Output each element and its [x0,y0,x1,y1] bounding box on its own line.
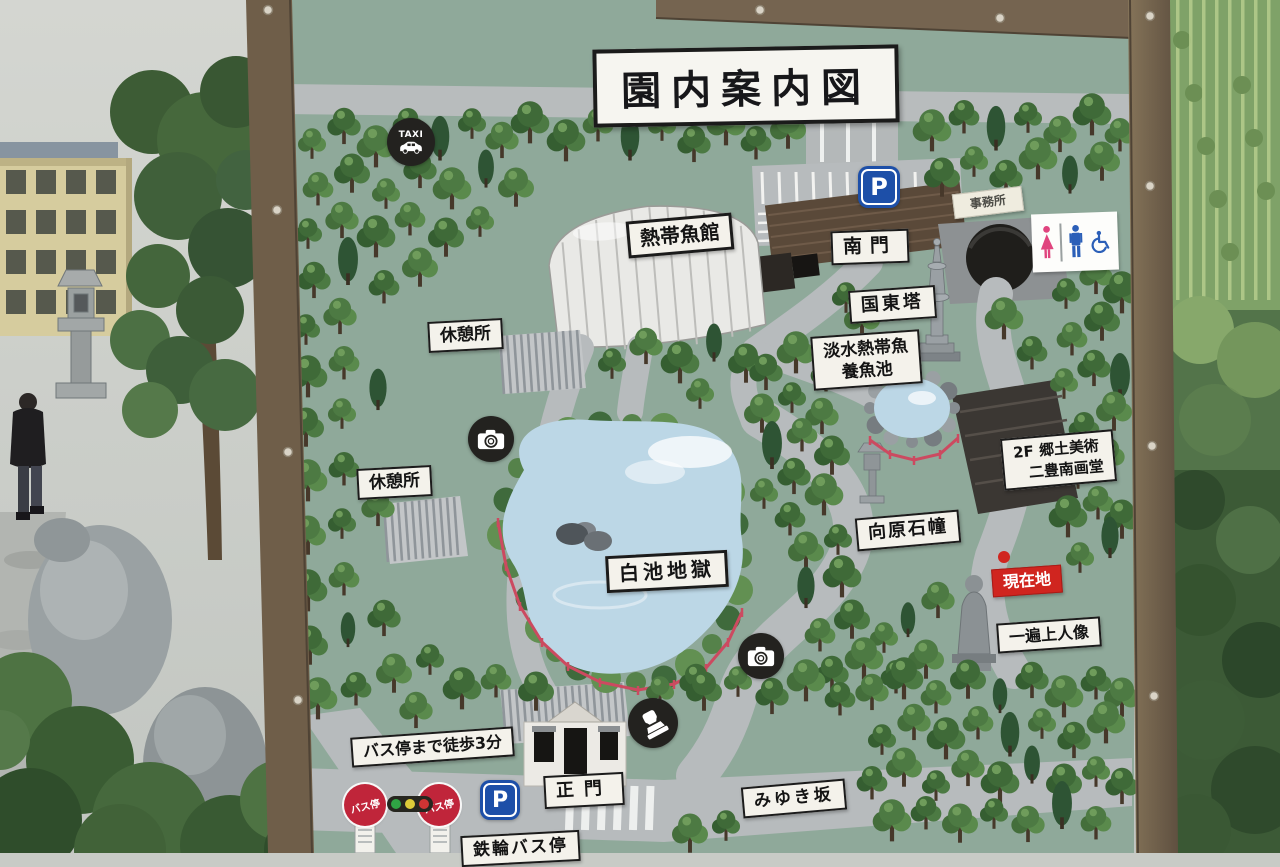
wheelchair-icon [1088,229,1111,254]
parking-icon-top: P [858,166,900,208]
toilet-icon [1031,212,1119,273]
photo-spot-icon-2 [738,633,784,679]
background-building [0,142,132,336]
right-hedge [1159,0,1280,853]
label-freshwater-pond: 淡水熱帯魚 養魚池 [810,329,923,391]
label-main-gate: 正門 [543,772,625,809]
label-gallery: 2F 郷土美術 二豊南画堂 [1000,429,1117,491]
rest-shelter-1 [498,330,586,394]
parking-icon-bottom: P [480,780,520,820]
taxi-icon: TAXI [387,118,435,166]
parking-letter: P [870,173,888,201]
label-rest-area-1: 休憩所 [427,318,504,353]
current-location-dot [998,551,1010,563]
photo-spot-icon-1 [468,416,514,462]
label-kannawa-bus-stop: 鉄輪バス停 [460,830,580,867]
bus-stop-sign-text: バス停 [349,794,382,816]
camera-glyph [747,646,775,667]
label-kunisaki-tower: 国東塔 [848,285,937,323]
label-south-gate: 南門 [830,229,909,265]
label-rest-area-2: 休憩所 [356,465,433,500]
bus-stop-sign-icon-1: バス停 [344,784,386,826]
toilet-divider [1060,223,1063,261]
camera-glyph [477,429,505,450]
label-shiraike-jigoku: 白池地獄 [605,550,729,593]
stamp-spot-icon [628,698,678,748]
map-title: 園内案内図 [592,44,899,127]
man-icon [1067,223,1084,262]
rest-shelter-2 [382,496,468,564]
car-glyph [398,141,424,154]
taxi-text: TAXI [399,130,424,140]
parking-letter: P [492,788,508,813]
stamp-glyph [633,703,674,744]
traffic-light-icon [387,796,433,812]
woman-icon [1039,224,1056,263]
label-current-location: 現在地 [991,565,1063,598]
